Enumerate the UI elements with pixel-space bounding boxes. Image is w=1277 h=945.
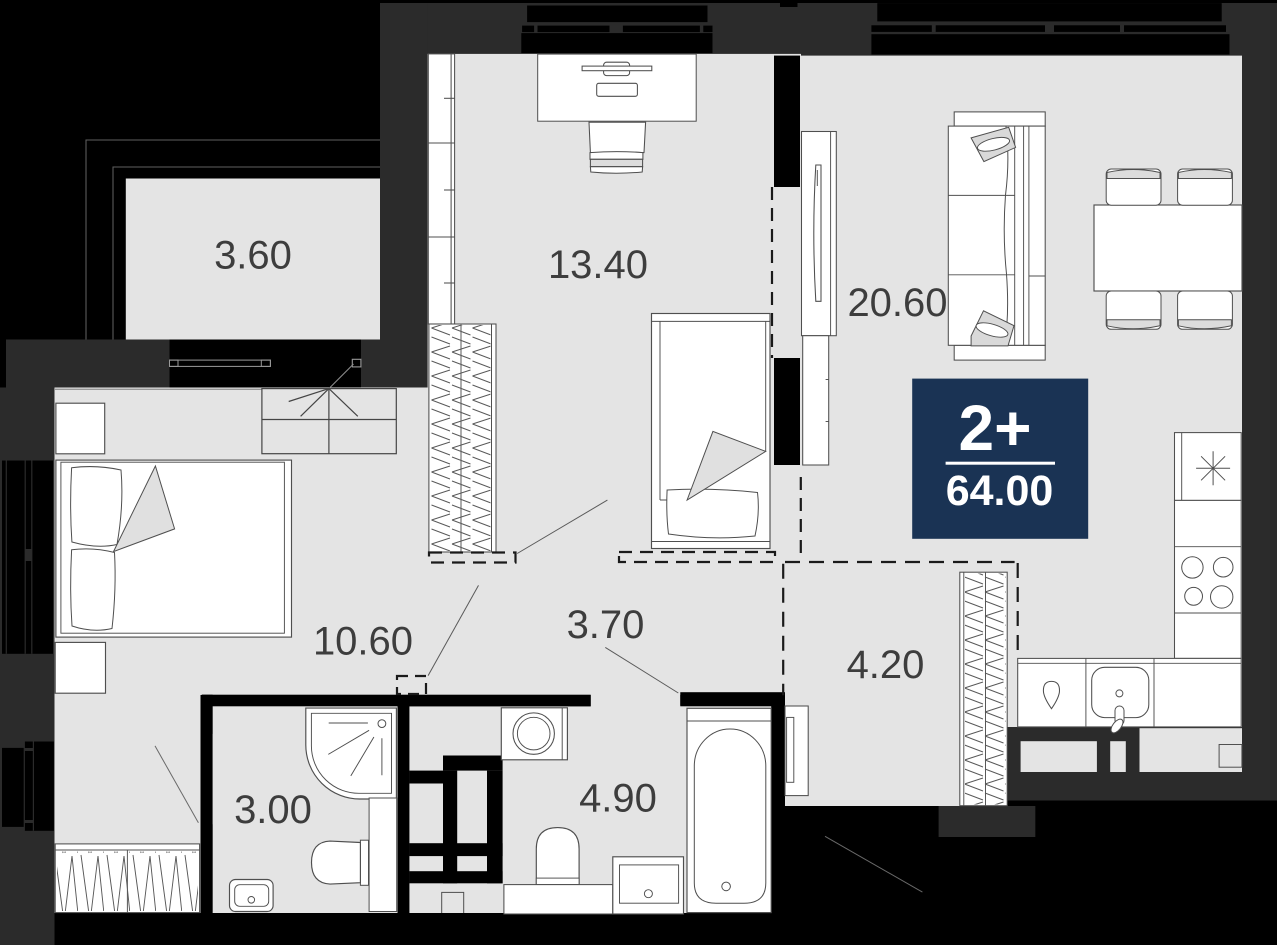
svg-text:3.70: 3.70 [567, 603, 645, 647]
svg-text:4.20: 4.20 [847, 643, 925, 687]
svg-text:10.60: 10.60 [313, 620, 413, 664]
svg-text:4.90: 4.90 [579, 777, 657, 821]
svg-text:20.60: 20.60 [847, 281, 947, 325]
svg-text:64.00: 64.00 [946, 467, 1054, 515]
svg-text:13.40: 13.40 [548, 243, 648, 287]
svg-text:3.60: 3.60 [214, 234, 292, 278]
svg-text:3.00: 3.00 [234, 788, 312, 832]
svg-text:2+: 2+ [959, 392, 1032, 464]
